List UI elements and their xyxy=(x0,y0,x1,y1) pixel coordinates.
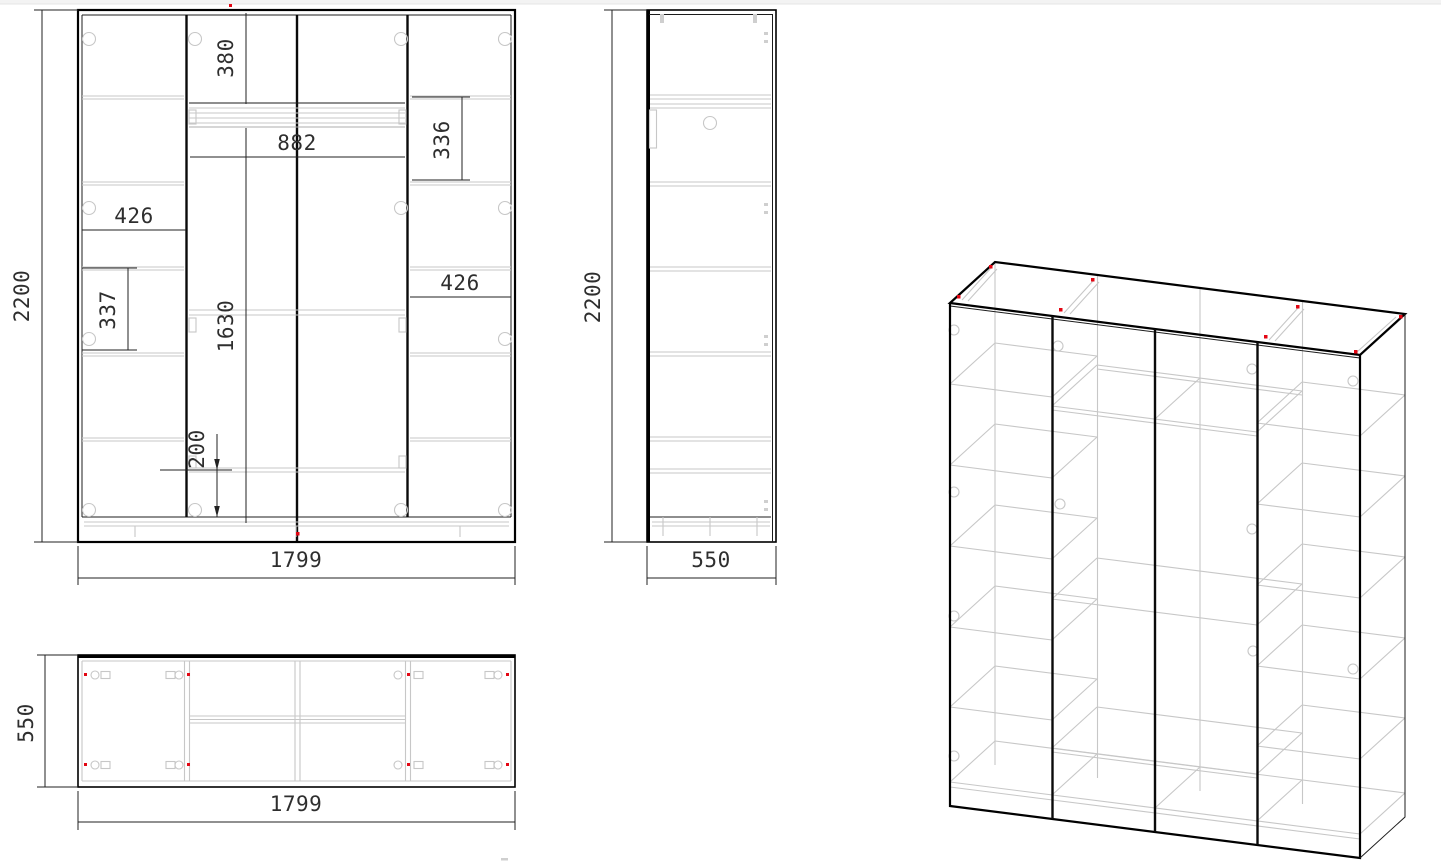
dim-side-overall-height: 2200 xyxy=(581,271,605,324)
slide-bracket xyxy=(650,110,657,148)
dim-front-overall-height: 2200 xyxy=(10,270,34,323)
dim-top-overall-width: 1799 xyxy=(270,792,323,816)
dim-front-inner-height: 1630 xyxy=(214,300,238,353)
hinge-mark xyxy=(753,14,757,23)
dim-front-right-upper-section: 336 xyxy=(430,120,454,159)
dim-side-overall-depth: 550 xyxy=(691,548,730,572)
dim-front-left-section-height: 337 xyxy=(96,290,120,329)
wardrobe-technical-drawing: 2200 1799 380 1630 200 882 336 4 xyxy=(0,0,1441,867)
front-view: 2200 1799 380 1630 200 882 336 4 xyxy=(10,4,515,585)
top-edge-strip xyxy=(0,0,1441,4)
stray-tick xyxy=(501,858,508,861)
isometric-fitting-markers xyxy=(957,265,1403,354)
dim-front-top-section: 380 xyxy=(214,38,238,77)
fitting-marker xyxy=(229,4,232,7)
isometric-outline xyxy=(950,262,1405,858)
dim-front-center-span: 882 xyxy=(277,131,316,155)
top-dimensions: 550 1799 xyxy=(14,655,515,830)
drawing-canvas: 2200 1799 380 1630 200 882 336 4 xyxy=(0,0,1441,867)
dim-front-left-shelf-width: 426 xyxy=(114,204,153,228)
fitting-marker xyxy=(296,532,300,536)
isometric-view xyxy=(949,262,1405,858)
hinge-mark xyxy=(660,14,664,23)
side-view: 2200 550 xyxy=(581,10,776,585)
dim-front-overall-width: 1799 xyxy=(270,548,323,572)
dim-top-overall-depth: 550 xyxy=(14,703,38,742)
cam-lock-icon xyxy=(704,117,717,130)
dim-front-right-shelf-width: 426 xyxy=(440,271,479,295)
side-dimensions: 2200 550 xyxy=(581,10,776,585)
top-view: 550 1799 xyxy=(14,655,515,861)
dim-front-bottom-section: 200 xyxy=(185,429,209,468)
isometric-internal-lines xyxy=(949,262,1405,839)
